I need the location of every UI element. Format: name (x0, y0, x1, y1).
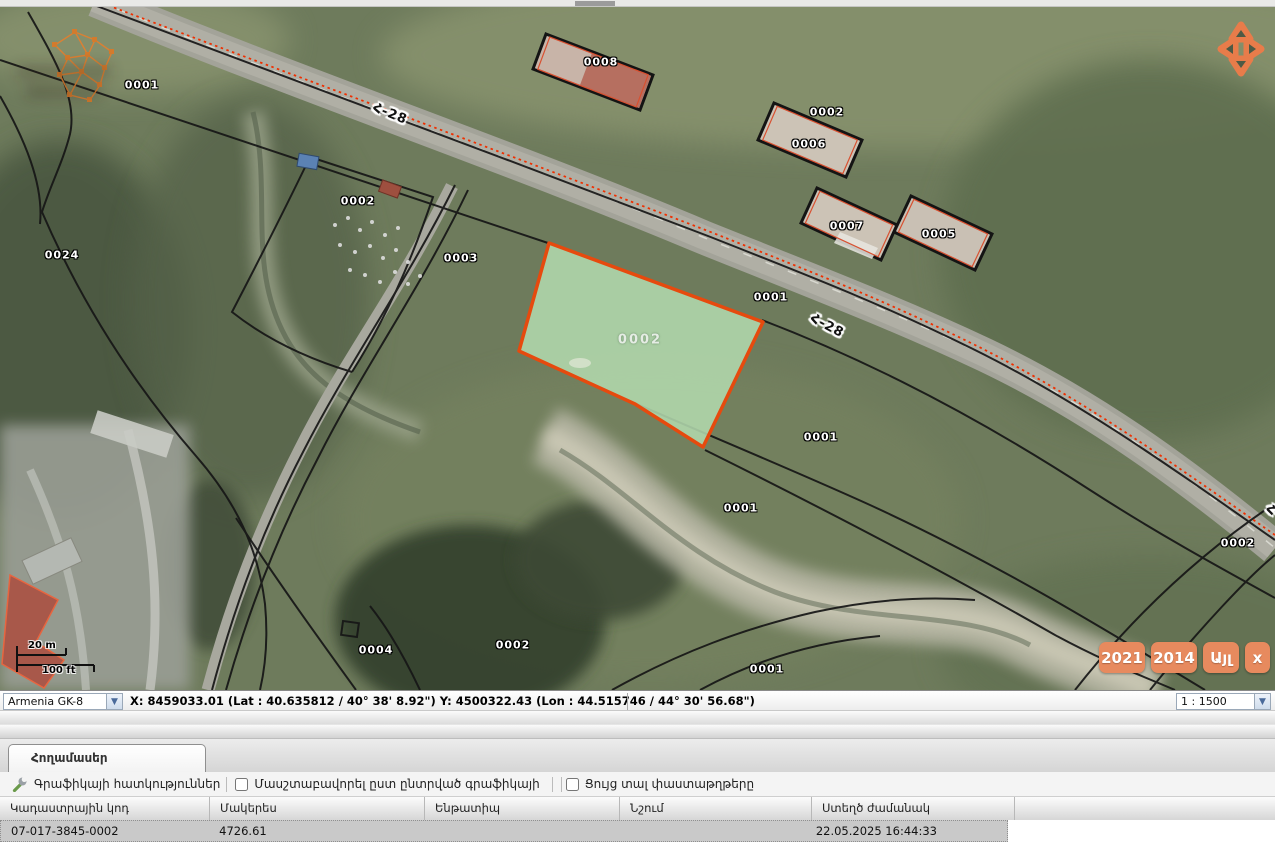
table-header-filler (1015, 797, 1275, 820)
divider (552, 777, 553, 792)
scalebar-metric-label: 20 m (28, 640, 56, 651)
note-cell (616, 821, 806, 843)
projection-value: Armenia GK-8 (4, 695, 106, 708)
blue-roof-building (297, 153, 319, 169)
wrench-icon (12, 776, 28, 792)
table-header-cell-3[interactable]: Նշում (620, 797, 812, 820)
table-row[interactable]: 07-017-3845-00024726.6122.05.2025 16:44:… (0, 820, 1008, 842)
divider (226, 777, 227, 792)
panel-toolbar: Գրաֆիկայի հատկություններ Մասշտաբավորել ը… (0, 772, 1275, 797)
coordinates-readout: X: 8459033.01 (Lat : 40.635812 / 40° 38'… (130, 691, 755, 712)
status-bar: Armenia GK-8 ▼ X: 8459033.01 (Lat : 40.6… (0, 690, 1275, 711)
table-header-cell-4[interactable]: Ստեղծ ժամանակ (812, 797, 1015, 820)
panel-splitter[interactable] (0, 711, 1275, 739)
table-header-cell-1[interactable]: Մակերես (210, 797, 425, 820)
graphics-properties-button[interactable]: Գրաֆիկայի հատկություններ (34, 777, 220, 791)
divider (627, 693, 628, 710)
satellite-map (0, 0, 1275, 690)
divider (561, 777, 562, 792)
chevron-down-icon: ▼ (1254, 694, 1270, 709)
cadastral-code-cell: 07-017-3845-0002 (1, 821, 209, 843)
scale-bar: 20 m 100 ft (12, 638, 112, 680)
subtype-cell (422, 821, 615, 843)
cadastre-app: 0001000800020006000200070005002400030001… (0, 0, 1275, 844)
scale-select[interactable]: 1 : 1500 ▼ (1176, 693, 1271, 710)
scalebar-imperial-label: 100 ft (42, 665, 76, 676)
scale-by-graphic-checkbox[interactable] (235, 778, 248, 791)
show-documents-label: Ցույց տալ փաստաթղթերը (585, 777, 754, 791)
pan-control (1214, 18, 1270, 82)
year-layer-buttons: 20212014Այլx (1099, 642, 1270, 673)
table-header: Կադաստրային կոդՄակերեսԵնթատիպՆշումՍտեղծ … (0, 797, 1275, 820)
layer-button-այլ[interactable]: Այլ (1203, 642, 1239, 673)
tab-bar: Հողամասեր (0, 739, 1275, 772)
map-viewport[interactable]: 0001000800020006000200070005002400030001… (0, 0, 1275, 690)
show-documents-checkbox[interactable] (566, 778, 579, 791)
table-header-cell-2[interactable]: Ենթատիպ (425, 797, 620, 820)
drag-handle[interactable] (575, 1, 615, 6)
scale-value: 1 : 1500 (1177, 695, 1254, 708)
created-cell: 22.05.2025 16:44:33 (806, 821, 1007, 843)
scale-by-graphic-label: Մասշտաբավորել ըստ ընտրված գրաֆիկայի (254, 777, 539, 791)
layer-button-2021[interactable]: 2021 (1099, 642, 1145, 673)
table-header-cell-0[interactable]: Կադաստրային կոդ (0, 797, 210, 820)
projection-select[interactable]: Armenia GK-8 ▼ (3, 693, 123, 710)
area-cell: 4726.61 (209, 821, 422, 843)
layer-button-2014[interactable]: 2014 (1151, 642, 1197, 673)
chevron-down-icon: ▼ (106, 694, 122, 709)
tab-parcels[interactable]: Հողամասեր (8, 744, 206, 772)
layer-button-x[interactable]: x (1245, 642, 1270, 673)
top-strip (0, 0, 1275, 7)
